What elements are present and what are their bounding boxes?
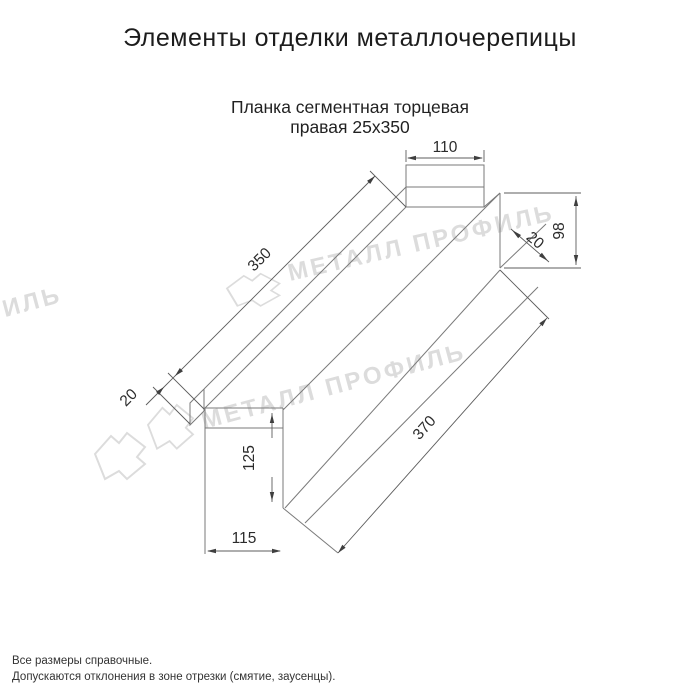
- dim-label-98: 98: [551, 222, 568, 239]
- metal-profile-logo-icon: [95, 433, 145, 479]
- dim-label-125: 125: [241, 445, 258, 471]
- dim-label-110: 110: [433, 139, 458, 156]
- dim-right-fold: 20: [511, 228, 549, 262]
- dim-label-350: 350: [245, 244, 276, 275]
- metal-profile-logo-icon: [148, 405, 193, 449]
- dim-label-115: 115: [232, 530, 257, 547]
- watermark-text: МЕТАЛЛ ПРОФИЛЬ: [0, 281, 65, 378]
- technical-drawing: МЕТАЛЛ ПРОФИЛЬ МЕТАЛЛ ПРОФИЛЬ МЕТАЛЛ ПРО…: [0, 0, 700, 700]
- drawing-page: Элементы отделки металлочерепицы Планка …: [0, 0, 700, 700]
- dim-front-height: 125: [241, 413, 274, 502]
- dim-label-370: 370: [410, 412, 440, 443]
- watermark-text: МЕТАЛЛ ПРОФИЛЬ: [285, 199, 557, 287]
- footnotes: Все размеры справочные. Допускаются откл…: [12, 654, 335, 685]
- dim-bottom-width: 115: [207, 530, 281, 553]
- footnote-line2: Допускаются отклонения в зоне отрезки (с…: [12, 670, 335, 686]
- metal-profile-logo-icon: [227, 274, 280, 306]
- dim-label-20-left: 20: [117, 385, 141, 409]
- dim-top-width: 110: [406, 139, 484, 162]
- watermark-layer: МЕТАЛЛ ПРОФИЛЬ МЕТАЛЛ ПРОФИЛЬ МЕТАЛЛ ПРО…: [0, 199, 557, 479]
- dim-bottom-length: 370: [338, 270, 549, 553]
- footnote-line1: Все размеры справочные.: [12, 654, 335, 670]
